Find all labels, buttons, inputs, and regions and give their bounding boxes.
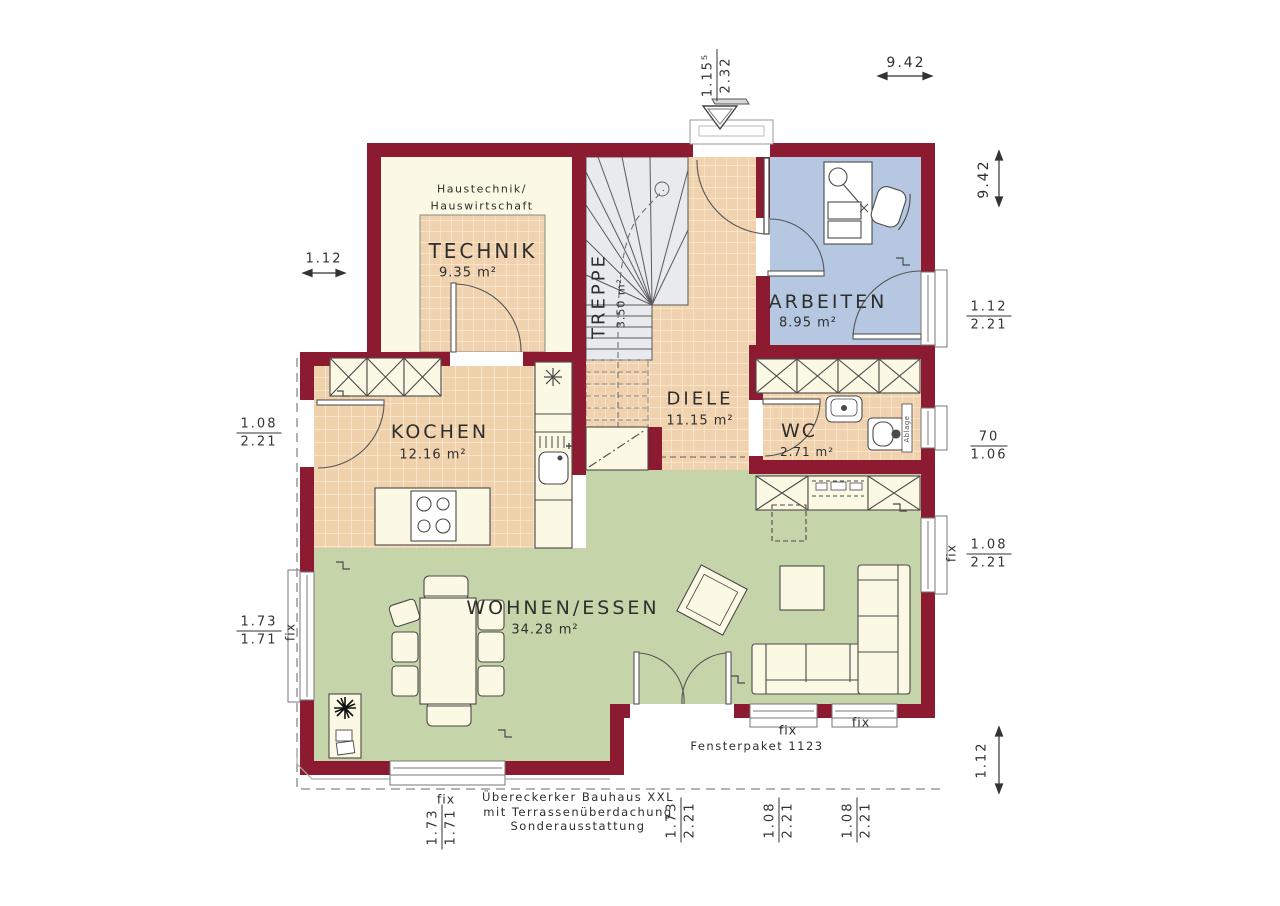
fix-label-bay: fix (437, 792, 455, 807)
arbeiten-room-area: 8.95 m² (779, 316, 837, 331)
wall-wc-south (749, 460, 921, 474)
kochen-room-area: 12.16 m² (399, 448, 466, 463)
dim-right-overhang: 1.12 (975, 742, 990, 779)
wall-stair-west (572, 157, 586, 475)
wc-shelf-label: Ablage (903, 415, 911, 442)
plant-icon (334, 697, 356, 719)
window-sill-arbeiten (935, 270, 947, 347)
fix-label-left: fix (283, 623, 298, 641)
floor-plan-page: Haustechnik/ Hauswirtschaft TECHNIK 9.35… (0, 0, 1280, 906)
kitchen-sink-icon (539, 452, 568, 484)
dim-bottom-win1: 1.08 2.21 (763, 798, 796, 843)
fix-label-right: fix (944, 544, 959, 562)
kochen-door-leaf (317, 400, 384, 405)
footer-line2: mit Terrassenüberdachung (483, 805, 672, 819)
technik-note-line2: Hauswirtschaft (430, 200, 533, 213)
arbeiten-window-leaf (853, 334, 921, 339)
technik-door-leaf (451, 283, 456, 352)
dim-right-wc: 70 1.06 (971, 430, 1008, 463)
arbeiten-door-leaf (768, 271, 824, 276)
fix-label-bottom1: fix (779, 723, 797, 738)
dim-left-notch: 1.12 (306, 252, 343, 267)
footer-line1: Übereckerker Bauhaus XXL (482, 790, 674, 804)
dim-bottom-win2: 1.08 2.21 (841, 798, 874, 843)
technik-note-line1: Haustechnik/ (437, 183, 527, 196)
technik-tiled-area (420, 215, 545, 352)
wc-room-area: 2.71 m² (780, 445, 834, 459)
technik-room-area: 9.35 m² (439, 266, 497, 281)
coffee-table (780, 566, 824, 610)
dim-right-arbeiten: 1.12 2.21 (967, 300, 1012, 333)
wall-top (367, 143, 935, 157)
wc-door-leaf (763, 399, 820, 404)
kochen-room-name: KOCHEN (391, 421, 489, 443)
wohnen-room-name: WOHNEN/ESSEN (466, 597, 659, 619)
kitchen-island (375, 488, 490, 545)
dim-left-kochen: 1.08 2.21 (237, 417, 282, 450)
treppe-room-name: TREPPE (589, 253, 610, 339)
diele-room-area: 11.15 m² (666, 414, 733, 429)
wall-arbeiten-south (749, 345, 921, 359)
plant-stand (329, 694, 361, 758)
window-sill-wc (935, 406, 947, 450)
kitchen-counter (535, 362, 572, 548)
hall-wardrobe (756, 359, 920, 393)
fensterpaket-label: Fensterpaket 1123 (690, 739, 823, 753)
window-sill-bay (390, 775, 505, 785)
dim-bottom-bay: 1.73 1.71 (426, 805, 459, 850)
appliance-star-icon (544, 368, 562, 386)
arbeiten-room-name: ARBEITEN (769, 291, 888, 313)
kitchen-wardrobe (330, 358, 441, 396)
wall-left-upper (367, 143, 381, 366)
floor-plan-drawing (0, 0, 1280, 906)
footer-line3: Sonderausstattung (511, 819, 646, 833)
stair-niche (586, 427, 648, 470)
diele-room-name: DIELE (667, 389, 734, 410)
fix-label-bottom2: fix (852, 715, 870, 730)
cooktop-icon (411, 491, 456, 541)
terrace-door-leaf-left (634, 652, 639, 704)
terrace-door-leaf-right (726, 652, 731, 704)
dim-entrance-door: 1.15⁵ 2.32 (701, 49, 734, 101)
entrance-door-leaf (764, 158, 769, 234)
technik-room-name: TECHNIK (429, 239, 538, 263)
treppe-room-area: 3.50 m² (615, 278, 628, 328)
dim-right-wohnen: 1.08 2.21 (967, 538, 1012, 571)
wohnen-room-area: 34.28 m² (511, 623, 578, 638)
dim-right-height: 9.42 (976, 159, 992, 198)
wc-room-name: WC (781, 420, 817, 442)
dim-left-wohnen: 1.73 1.71 (237, 615, 282, 648)
wall-niche-stub (648, 427, 662, 470)
dim-top-width: 9.42 (886, 55, 925, 71)
